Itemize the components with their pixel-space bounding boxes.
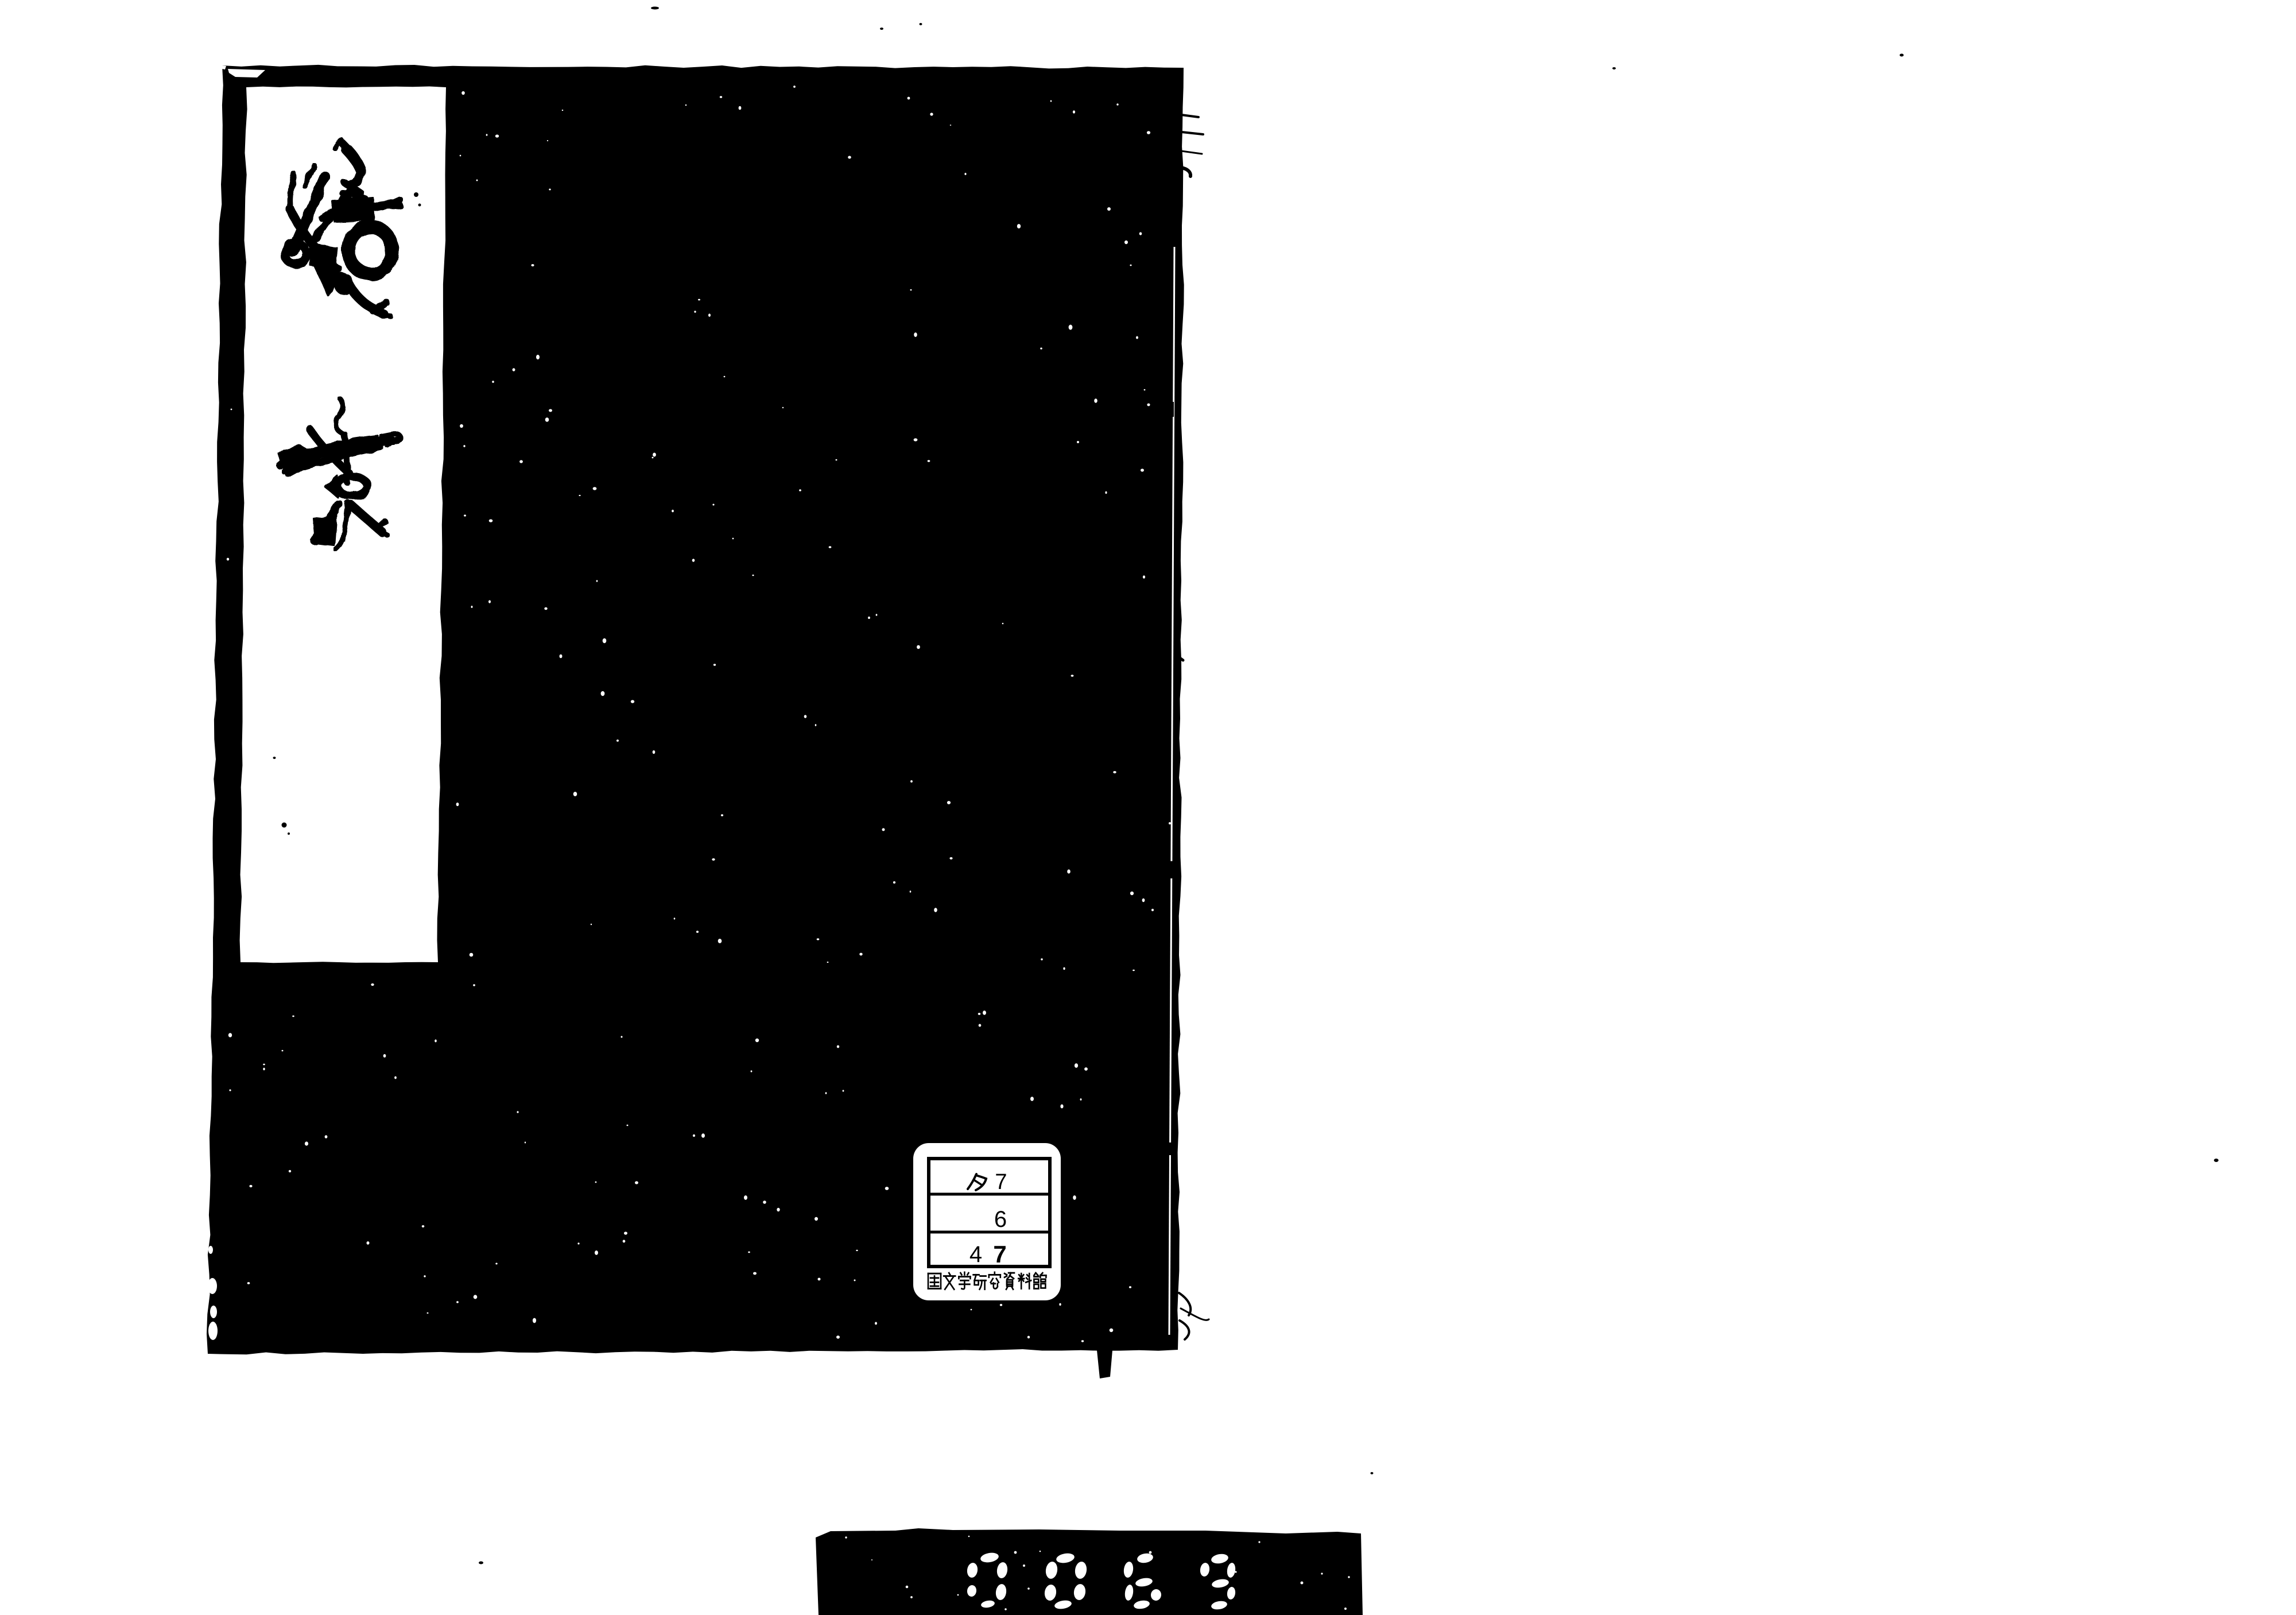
- svg-text:6: 6: [994, 1207, 1007, 1232]
- svg-text:7: 7: [995, 1170, 1007, 1194]
- svg-text:4: 4: [969, 1242, 982, 1267]
- svg-text:7: 7: [993, 1241, 1006, 1268]
